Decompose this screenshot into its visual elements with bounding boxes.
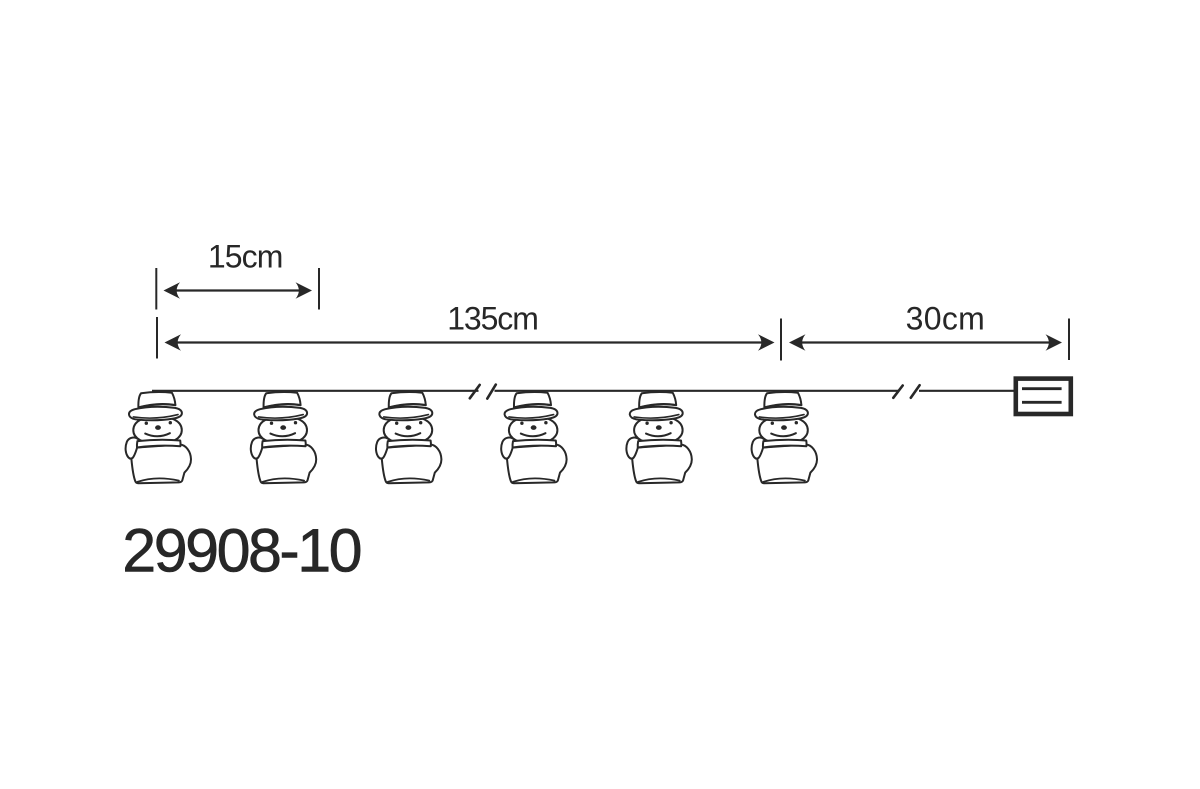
svg-text:15cm: 15cm — [208, 238, 283, 274]
svg-text:30cm: 30cm — [906, 300, 985, 336]
svg-text:135cm: 135cm — [447, 300, 538, 336]
svg-text:29908-10: 29908-10 — [122, 517, 360, 585]
